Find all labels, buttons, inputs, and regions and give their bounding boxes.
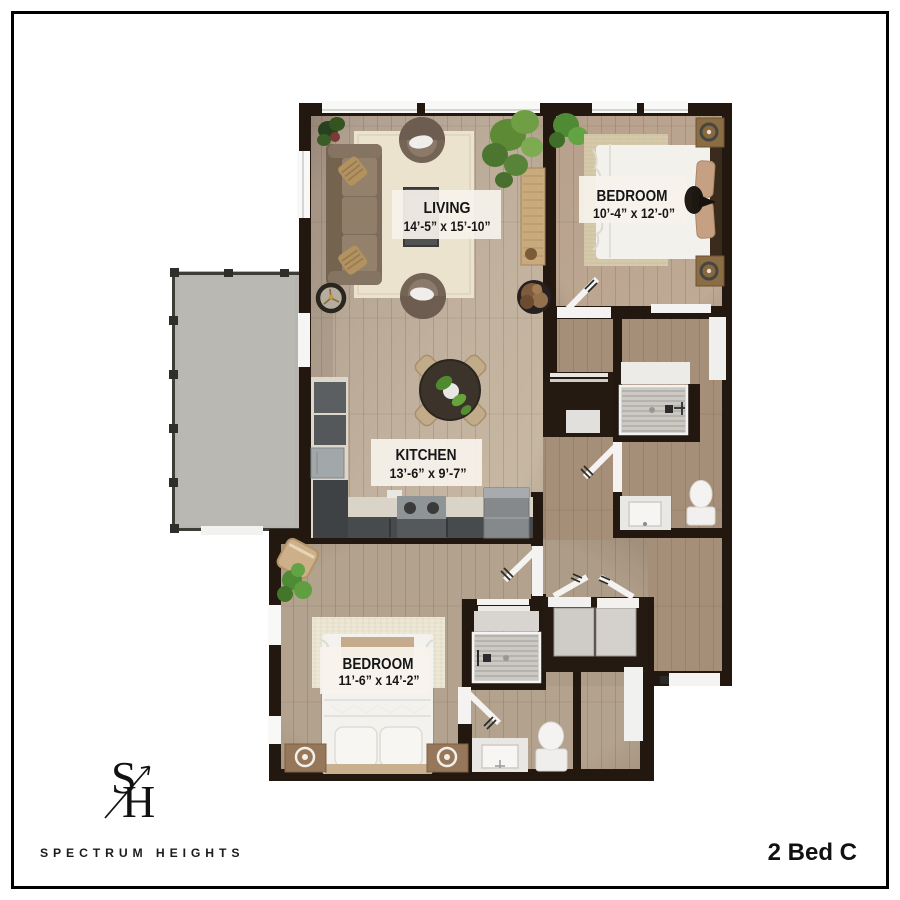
svg-text:BEDROOM: BEDROOM	[343, 656, 414, 673]
svg-text:LIVING: LIVING	[424, 200, 471, 217]
svg-text:BEDROOM: BEDROOM	[597, 188, 668, 205]
svg-text:10’-4” x 12’-0”: 10’-4” x 12’-0”	[593, 206, 675, 221]
svg-text:13’-6” x 9’-7”: 13’-6” x 9’-7”	[390, 466, 467, 481]
svg-text:14’-5” x 15’-10”: 14’-5” x 15’-10”	[404, 219, 491, 234]
svg-text:11’-6” x 14’-2”: 11’-6” x 14’-2”	[339, 673, 420, 688]
svg-text:KITCHEN: KITCHEN	[396, 447, 457, 464]
svg-text:H: H	[122, 776, 155, 827]
svg-text:SPECTRUM HEIGHTS: SPECTRUM HEIGHTS	[40, 846, 244, 860]
svg-text:2 Bed C: 2 Bed C	[768, 839, 857, 866]
